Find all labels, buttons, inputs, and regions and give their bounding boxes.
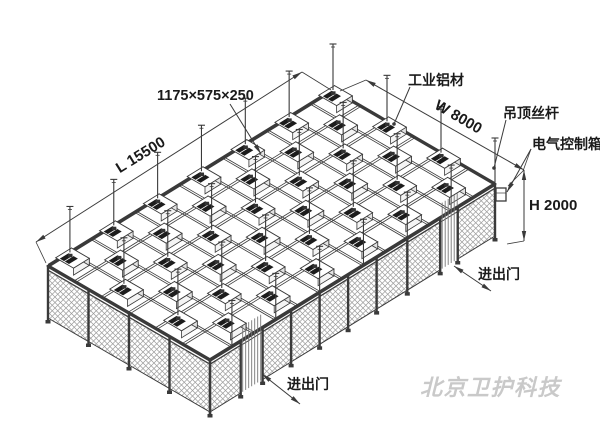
height-dim-label: H 2000 — [529, 197, 577, 214]
ceiling-rod-label: 吊顶丝杆 — [503, 105, 559, 121]
ffu-units — [56, 86, 466, 340]
material-label: 工业铝材 — [408, 72, 464, 88]
ffu-size-label: 1175×575×250 — [157, 88, 254, 104]
door-bottom-label: 进出门 — [287, 376, 329, 392]
control-box-label: 电气控制箱 — [532, 136, 600, 152]
company-watermark: 北京卫护科技 — [420, 375, 563, 400]
length-dim-label: L 15500 — [113, 134, 169, 177]
drawing-page: 1175×575×250 L 15500 W 8000 H 2000 工业铝材 … — [0, 0, 600, 425]
isometric-cleanroom-drawing: 1175×575×250 L 15500 W 8000 H 2000 工业铝材 … — [0, 0, 600, 425]
door-right-label: 进出门 — [478, 266, 520, 282]
width-dim-label: W 8000 — [432, 97, 485, 138]
